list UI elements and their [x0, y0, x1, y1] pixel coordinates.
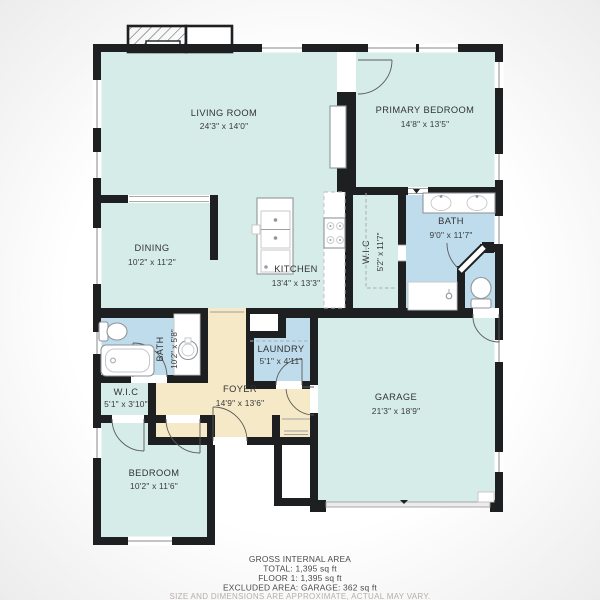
living-wall-niche	[330, 106, 346, 168]
primary-vanity-fixture	[423, 193, 495, 213]
kitchen-island-fixture	[252, 198, 293, 274]
footer-gross-area: GROSS INTERNAL AREA	[249, 554, 351, 564]
stove-fixture	[324, 218, 345, 248]
room-label-primary-bath: BATH	[438, 216, 464, 226]
footer-floor1: FLOOR 1: 1,395 sq ft	[258, 573, 342, 583]
room-dims-primary-closet: 5'2" x 11'7"	[376, 232, 385, 271]
footer-disclaimer: SIZE AND DIMENSIONS ARE APPROXIMATE, ACT…	[169, 592, 430, 600]
room-dims-primary-bedroom: 14'8" x 13'5"	[401, 119, 450, 129]
island-faucet	[252, 225, 260, 234]
room-dims-kitchen: 13'4" x 13'3"	[272, 278, 321, 288]
room-dims-hall-closet: 5'1" x 3'10"	[104, 399, 148, 409]
room-label-living: LIVING ROOM	[191, 108, 257, 118]
primary-toilet-fixture	[471, 278, 491, 309]
room-label-foyer: FOYER	[223, 384, 257, 394]
room-dims-hall-bath: 10'2" x 5'8"	[170, 329, 179, 369]
room-dims-laundry: 5'1" x 4'11"	[259, 356, 302, 366]
room-dims-garage: 21'3" x 18'9"	[372, 406, 421, 416]
room-dims-bedroom: 10'2" x 11'6"	[130, 481, 178, 491]
room-label-laundry: LAUNDRY	[257, 344, 304, 354]
hall-toilet-fixture	[99, 322, 127, 341]
room-dims-living: 24'3" x 14'0"	[200, 121, 249, 131]
room-label-kitchen: KITCHEN	[274, 264, 318, 274]
footer-total: TOTAL: 1,395 sq ft	[263, 564, 337, 574]
kitchen-counter-fixture	[324, 192, 345, 308]
room-label-garage: GARAGE	[375, 392, 417, 402]
room-dims-dining: 10'2" x 11'2"	[128, 257, 176, 267]
room-label-hall-closet: W.I.C	[114, 387, 139, 397]
room-dims-primary-bath: 9'0" x 11'7"	[429, 230, 472, 240]
garage-step	[478, 492, 494, 502]
primary-shower-fixture	[408, 282, 457, 310]
footer: GROSS INTERNAL AREA TOTAL: 1,395 sq ft F…	[169, 554, 430, 600]
floor-plan: LIVING ROOM 24'3" x 14'0" PRIMARY BEDROO…	[0, 0, 600, 600]
room-label-dining: DINING	[135, 243, 170, 253]
bathtub-fixture	[101, 345, 154, 376]
laundry-closet	[250, 314, 278, 331]
room-label-hall-bath: BATH	[155, 337, 165, 362]
room-label-primary-closet: W.I.C	[361, 240, 371, 264]
room-label-bedroom: BEDROOM	[129, 468, 180, 478]
room-dims-foyer: 14'9" x 13'6"	[216, 398, 265, 408]
footer-excluded: EXCLUDED AREA: GARAGE: 362 sq ft	[223, 583, 377, 593]
room-label-primary-bedroom: PRIMARY BEDROOM	[376, 105, 475, 115]
